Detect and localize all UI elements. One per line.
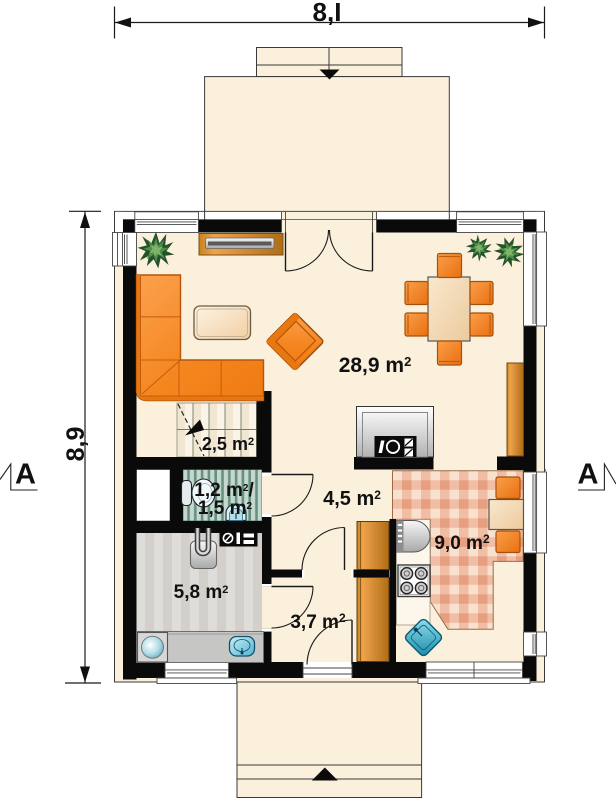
svg-text:A: A — [15, 459, 36, 491]
svg-text:28,9 m2: 28,9 m2 — [339, 354, 412, 377]
svg-text:1,5 m2: 1,5 m2 — [198, 498, 253, 519]
svg-text:4,5 m2: 4,5 m2 — [323, 488, 381, 510]
svg-text:9,0 m2: 9,0 m2 — [434, 532, 490, 554]
svg-text:A: A — [578, 459, 599, 491]
svg-text:3,7 m2: 3,7 m2 — [290, 611, 346, 633]
svg-text:8,9: 8,9 — [62, 427, 90, 462]
svg-text:5,8 m2: 5,8 m2 — [174, 582, 229, 603]
svg-text:8,I: 8,I — [313, 0, 342, 27]
svg-text:2,5 m2: 2,5 m2 — [202, 434, 254, 454]
